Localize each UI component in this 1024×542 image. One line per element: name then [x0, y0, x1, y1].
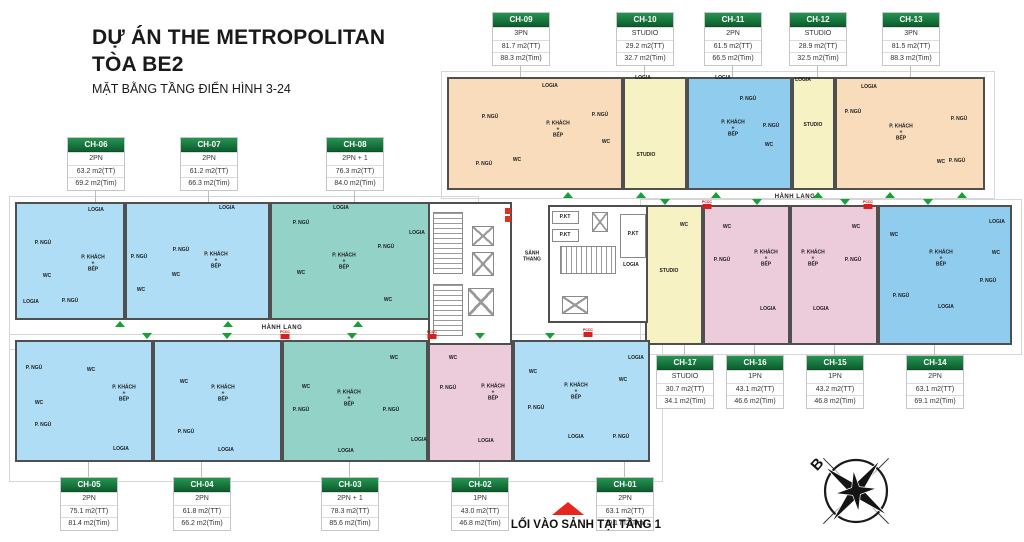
fire-equipment-icon — [505, 216, 511, 222]
unit-card-area-tt: 30.7 m2(TT) — [657, 383, 713, 396]
room-label: LOGIA — [628, 356, 644, 362]
unit-card-area-tim: 66.2 m2(Tim) — [174, 517, 230, 530]
unit-entrance-arrow-icon — [545, 333, 555, 339]
room-label: LOGIA — [542, 84, 558, 90]
room-label: LOGIA — [989, 220, 1005, 226]
card-connector-line — [479, 462, 480, 477]
room-label: P. NGỦ — [293, 221, 310, 227]
room-label: WC — [297, 271, 305, 277]
unit-card-code: CH-03 — [322, 478, 378, 492]
room-label: P. KHÁCH + BẾP — [204, 252, 228, 269]
room-label: WC — [937, 160, 945, 166]
unit-entrance-arrow-icon — [223, 321, 233, 327]
fire-cabinet-marker — [584, 332, 593, 337]
core-label: SẢNH THANG — [523, 251, 541, 263]
unit-card-area-tt: 28.9 m2(TT) — [790, 40, 846, 53]
room-label: P. KHÁCH + BẾP — [481, 384, 505, 401]
room-label: P. NGỦ — [131, 255, 148, 261]
title-block: DỰ ÁN THE METROPOLITAN TÒA BE2 MẶT BẰNG … — [92, 24, 385, 96]
room-label: LOGIA — [635, 76, 651, 82]
room-label: P. NGỦ — [476, 162, 493, 168]
room-label: P. NGỦ — [62, 299, 79, 305]
unit-card-type: 1PN — [452, 492, 508, 505]
project-title-line1: DỰ ÁN THE METROPOLITAN — [92, 24, 385, 51]
plan-subtitle: MẶT BẰNG TẦNG ĐIỂN HÌNH 3-24 — [92, 82, 385, 96]
room-label: WC — [723, 225, 731, 231]
unit-entrance-arrow-icon — [813, 192, 823, 198]
fire-cabinet-label: PCCC — [427, 330, 437, 334]
unit-card-area-tim: 32.5 m2(Tim) — [790, 52, 846, 65]
unit-card-type: 2PN + 1 — [327, 152, 383, 165]
room-label: P. NGỦ — [293, 408, 310, 414]
unit-card-area-tt: 63.1 m2(TT) — [907, 383, 963, 396]
room-label: LOGIA — [760, 307, 776, 313]
room-label: P. KHÁCH + BẾP — [337, 390, 361, 407]
unit-CH-12[interactable] — [792, 77, 835, 190]
room-label: P. KHÁCH + BẾP — [889, 124, 913, 141]
unit-card-CH-15[interactable]: CH-151PN43.2 m2(TT)46.8 m2(Tim) — [806, 355, 864, 409]
unit-CH-10[interactable] — [623, 77, 687, 190]
unit-card-area-tt: 43.2 m2(TT) — [807, 383, 863, 396]
room-label: P. KHÁCH + BẾP — [929, 250, 953, 267]
unit-card-type: 3PN — [883, 27, 939, 40]
unit-card-type: 2PN — [61, 492, 117, 505]
fire-cabinet-marker — [281, 334, 290, 339]
project-title-line2: TÒA BE2 — [92, 51, 385, 78]
fire-cabinet-marker — [864, 204, 873, 209]
fire-cabinet-label: PCCC — [280, 330, 290, 334]
unit-card-type: 2PN — [181, 152, 237, 165]
unit-CH-17[interactable] — [645, 205, 703, 345]
unit-card-code: CH-01 — [597, 478, 653, 492]
unit-card-type: STUDIO — [657, 370, 713, 383]
unit-card-type: STUDIO — [617, 27, 673, 40]
room-label: P. NGỦ — [845, 258, 862, 264]
room-label: P. KHÁCH + BẾP — [211, 385, 235, 402]
unit-card-area-tim: 85.6 m2(Tim) — [322, 517, 378, 530]
fire-cabinet-label: PCCC — [863, 200, 873, 204]
unit-card-code: CH-14 — [907, 356, 963, 370]
unit-card-area-tim: 46.6 m2(Tim) — [727, 395, 783, 408]
elevator-icon — [468, 288, 494, 316]
room-label: P. NGỦ — [440, 386, 457, 392]
room-label: P. NGỦ — [383, 408, 400, 414]
room-label: WC — [602, 140, 610, 146]
unit-card-area-tim: 32.7 m2(Tim) — [617, 52, 673, 65]
room-label: LOGIA — [861, 85, 877, 91]
room-label: LOGIA — [411, 438, 427, 444]
card-connector-line — [934, 345, 935, 355]
unit-card-area-tim: 81.4 m2(Tim) — [61, 517, 117, 530]
unit-card-type: 3PN — [493, 27, 549, 40]
elevator-icon — [472, 226, 494, 246]
room-label: LOGIA — [218, 448, 234, 454]
room-label: P. NGỦ — [35, 241, 52, 247]
elevator-icon — [472, 252, 494, 276]
unit-entrance-arrow-icon — [923, 199, 933, 205]
unit-entrance-arrow-icon — [957, 192, 967, 198]
unit-card-area-tt: 43.1 m2(TT) — [727, 383, 783, 396]
unit-card-area-tt: 63.1 m2(TT) — [597, 505, 653, 518]
room-label: P. KHÁCH + BẾP — [112, 385, 136, 402]
unit-card-CH-08[interactable]: CH-082PN + 176.3 m2(TT)84.0 m2(Tim) — [326, 137, 384, 191]
unit-card-code: CH-05 — [61, 478, 117, 492]
unit-card-CH-16[interactable]: CH-161PN43.1 m2(TT)46.6 m2(Tim) — [726, 355, 784, 409]
unit-card-area-tim: 66.5 m2(Tim) — [705, 52, 761, 65]
unit-card-area-tim: 69.1 m2(Tim) — [907, 395, 963, 408]
room-label: WC — [890, 233, 898, 239]
room-label: P. NGỦ — [173, 248, 190, 254]
unit-card-code: CH-16 — [727, 356, 783, 370]
core-label: P.KT — [560, 215, 571, 221]
unit-card-CH-05[interactable]: CH-052PN75.1 m2(TT)81.4 m2(Tim) — [60, 477, 118, 531]
core-label: P.KT — [560, 233, 571, 239]
unit-card-type: 2PN — [597, 492, 653, 505]
room-label: LOGIA — [795, 78, 811, 84]
unit-card-area-tim: 88.3 m2(Tim) — [493, 52, 549, 65]
fire-cabinet-marker — [703, 204, 712, 209]
unit-card-area-tt: 81.7 m2(TT) — [493, 40, 549, 53]
unit-card-type: 2PN — [907, 370, 963, 383]
unit-card-CH-07[interactable]: CH-072PN61.2 m2(TT)66.3 m2(Tim) — [180, 137, 238, 191]
room-label: P. KHÁCH + BẾP — [754, 250, 778, 267]
room-label: P. NGỦ — [951, 117, 968, 123]
room-label: P. NGỦ — [613, 435, 630, 441]
unit-card-CH-10[interactable]: CH-10STUDIO29.2 m2(TT)32.7 m2(Tim) — [616, 12, 674, 66]
unit-card-type: STUDIO — [790, 27, 846, 40]
unit-card-CH-17[interactable]: CH-17STUDIO30.7 m2(TT)34.1 m2(Tim) — [656, 355, 714, 409]
card-connector-line — [88, 462, 89, 477]
unit-entrance-arrow-icon — [711, 192, 721, 198]
unit-card-area-tim: 46.8 m2(Tim) — [807, 395, 863, 408]
room-label: P. NGỦ — [528, 406, 545, 412]
card-connector-line — [624, 462, 625, 477]
unit-card-area-tt: 61.5 m2(TT) — [705, 40, 761, 53]
entrance-label: LỐI VÀO SẢNH TẠI TẦNG 1 — [511, 519, 661, 531]
room-label: P. NGỦ — [893, 294, 910, 300]
room-label: P. NGỦ — [740, 97, 757, 103]
room-label: LOGIA — [23, 300, 39, 306]
room-label: P. NGỦ — [178, 430, 195, 436]
unit-card-area-tt: 78.3 m2(TT) — [322, 505, 378, 518]
room-label: LOGIA — [409, 231, 425, 237]
room-label: WC — [390, 356, 398, 362]
room-label: WC — [680, 223, 688, 229]
unit-entrance-arrow-icon — [222, 333, 232, 339]
unit-card-code: CH-11 — [705, 13, 761, 27]
unit-card-code: CH-10 — [617, 13, 673, 27]
unit-card-code: CH-04 — [174, 478, 230, 492]
elevator-icon — [592, 212, 608, 232]
unit-card-area-tim: 88.3 m2(Tim) — [883, 52, 939, 65]
unit-card-area-tim: 46.8 m2(Tim) — [452, 517, 508, 530]
unit-card-type: 2PN — [174, 492, 230, 505]
unit-card-area-tt: 81.5 m2(TT) — [883, 40, 939, 53]
unit-card-code: CH-08 — [327, 138, 383, 152]
fire-equipment-icon — [505, 208, 511, 214]
room-label: LOGIA — [88, 208, 104, 214]
room-label: P. KHÁCH + BẾP — [81, 255, 105, 272]
room-label: P. NGỦ — [592, 113, 609, 119]
unit-card-area-tim: 84.0 m2(Tim) — [327, 177, 383, 190]
room-label: P. KHÁCH + BẾP — [801, 250, 825, 267]
room-label: LOGIA — [113, 447, 129, 453]
unit-card-area-tim: 69.2 m2(Tim) — [68, 177, 124, 190]
unit-card-code: CH-13 — [883, 13, 939, 27]
stairs-icon — [433, 212, 463, 274]
unit-entrance-arrow-icon — [353, 321, 363, 327]
card-connector-line — [834, 345, 835, 355]
elevator-icon — [562, 296, 588, 314]
unit-card-area-tt: 76.3 m2(TT) — [327, 165, 383, 178]
room-label: LOGIA — [219, 206, 235, 212]
room-label: WC — [852, 225, 860, 231]
unit-card-area-tt: 63.2 m2(TT) — [68, 165, 124, 178]
room-label: WC — [302, 385, 310, 391]
unit-card-type: 2PN — [68, 152, 124, 165]
room-label: WC — [529, 370, 537, 376]
unit-card-CH-11[interactable]: CH-112PN61.5 m2(TT)66.5 m2(Tim) — [704, 12, 762, 66]
compass-icon — [813, 448, 899, 534]
stairs-icon — [433, 284, 463, 336]
room-label: P. NGỦ — [35, 423, 52, 429]
unit-entrance-arrow-icon — [885, 192, 895, 198]
fire-cabinet-label: PCCC — [702, 200, 712, 204]
room-label: LOGIA — [813, 307, 829, 313]
room-label: STUDIO — [660, 269, 679, 275]
room-label: P. NGỦ — [845, 110, 862, 116]
unit-entrance-arrow-icon — [475, 333, 485, 339]
unit-card-type: 1PN — [807, 370, 863, 383]
unit-card-CH-02[interactable]: CH-021PN43.0 m2(TT)46.8 m2(Tim) — [451, 477, 509, 531]
room-label: WC — [180, 380, 188, 386]
room-label: LOGIA — [568, 435, 584, 441]
room-label: P. NGỦ — [949, 159, 966, 165]
unit-card-code: CH-09 — [493, 13, 549, 27]
unit-card-CH-14[interactable]: CH-142PN63.1 m2(TT)69.1 m2(Tim) — [906, 355, 964, 409]
room-label: LOGIA — [938, 305, 954, 311]
unit-card-CH-12[interactable]: CH-12STUDIO28.9 m2(TT)32.5 m2(Tim) — [789, 12, 847, 66]
fire-cabinet-label: PCCC — [583, 328, 593, 332]
room-label: WC — [35, 401, 43, 407]
unit-entrance-arrow-icon — [636, 192, 646, 198]
unit-CH-07[interactable] — [125, 202, 270, 320]
fire-cabinet-marker — [428, 334, 437, 339]
unit-CH-15[interactable] — [790, 205, 878, 345]
card-connector-line — [754, 345, 755, 355]
unit-card-code: CH-06 — [68, 138, 124, 152]
floorplan-page: DỰ ÁN THE METROPOLITAN TÒA BE2 MẶT BẰNG … — [0, 0, 1024, 542]
room-label: STUDIO — [804, 123, 823, 129]
unit-entrance-arrow-icon — [840, 199, 850, 205]
unit-card-CH-03[interactable]: CH-032PN + 178.3 m2(TT)85.6 m2(Tim) — [321, 477, 379, 531]
room-label: P. NGỦ — [482, 115, 499, 121]
room-label: STUDIO — [637, 153, 656, 159]
unit-CH-09[interactable] — [447, 77, 623, 190]
unit-card-area-tim: 66.3 m2(Tim) — [181, 177, 237, 190]
unit-CH-14[interactable] — [878, 205, 1012, 345]
room-label: P. NGỦ — [980, 279, 997, 285]
room-label: P. NGỦ — [378, 245, 395, 251]
unit-card-code: CH-17 — [657, 356, 713, 370]
unit-entrance-arrow-icon — [660, 199, 670, 205]
stairs-icon — [560, 246, 616, 274]
unit-card-code: CH-02 — [452, 478, 508, 492]
unit-entrance-arrow-icon — [752, 199, 762, 205]
room-label: WC — [87, 368, 95, 374]
card-connector-line — [349, 462, 350, 477]
room-label: P. NGỦ — [714, 258, 731, 264]
room-label: WC — [513, 158, 521, 164]
unit-card-area-tt: 61.2 m2(TT) — [181, 165, 237, 178]
core-label: P.KT — [628, 232, 639, 238]
unit-card-CH-06[interactable]: CH-062PN63.2 m2(TT)69.2 m2(Tim) — [67, 137, 125, 191]
room-label: WC — [765, 143, 773, 149]
room-label: P. KHÁCH + BẾP — [546, 121, 570, 138]
room-label: LOGIA — [623, 263, 639, 269]
card-connector-line — [684, 345, 685, 355]
room-label: WC — [619, 378, 627, 384]
room-label: WC — [384, 298, 392, 304]
room-label: LOGIA — [338, 449, 354, 455]
unit-entrance-arrow-icon — [115, 321, 125, 327]
unit-card-area-tt: 75.1 m2(TT) — [61, 505, 117, 518]
room-label: P. KHÁCH + BẾP — [564, 383, 588, 400]
unit-card-CH-09[interactable]: CH-093PN81.7 m2(TT)88.3 m2(Tim) — [492, 12, 550, 66]
room-label: P. NGỦ — [26, 366, 43, 372]
corridor-label: HÀNH LANG — [775, 194, 816, 200]
unit-card-code: CH-07 — [181, 138, 237, 152]
entrance-arrow-icon — [552, 502, 584, 515]
unit-card-area-tim: 34.1 m2(Tim) — [657, 395, 713, 408]
room-label: LOGIA — [478, 439, 494, 445]
unit-card-area-tt: 61.8 m2(TT) — [174, 505, 230, 518]
unit-card-type: 2PN + 1 — [322, 492, 378, 505]
room-label: LOGIA — [333, 206, 349, 212]
unit-card-code: CH-15 — [807, 356, 863, 370]
unit-entrance-arrow-icon — [563, 192, 573, 198]
unit-card-type: 2PN — [705, 27, 761, 40]
room-label: WC — [172, 273, 180, 279]
unit-card-area-tt: 29.2 m2(TT) — [617, 40, 673, 53]
room-label: P. KHÁCH + BẾP — [332, 253, 356, 270]
room-label: P. KHÁCH + BẾP — [721, 120, 745, 137]
room-label: WC — [137, 288, 145, 294]
room-label: LOGIA — [715, 76, 731, 82]
unit-card-CH-04[interactable]: CH-042PN61.8 m2(TT)66.2 m2(Tim) — [173, 477, 231, 531]
unit-card-code: CH-12 — [790, 13, 846, 27]
unit-entrance-arrow-icon — [347, 333, 357, 339]
room-label: WC — [449, 356, 457, 362]
unit-card-type: 1PN — [727, 370, 783, 383]
unit-card-CH-13[interactable]: CH-133PN81.5 m2(TT)88.3 m2(Tim) — [882, 12, 940, 66]
room-label: P. NGỦ — [763, 124, 780, 130]
unit-card-area-tt: 43.0 m2(TT) — [452, 505, 508, 518]
unit-CH-16[interactable] — [703, 205, 790, 345]
card-connector-line — [201, 462, 202, 477]
room-label: WC — [43, 274, 51, 280]
room-label: WC — [992, 251, 1000, 257]
unit-entrance-arrow-icon — [142, 333, 152, 339]
